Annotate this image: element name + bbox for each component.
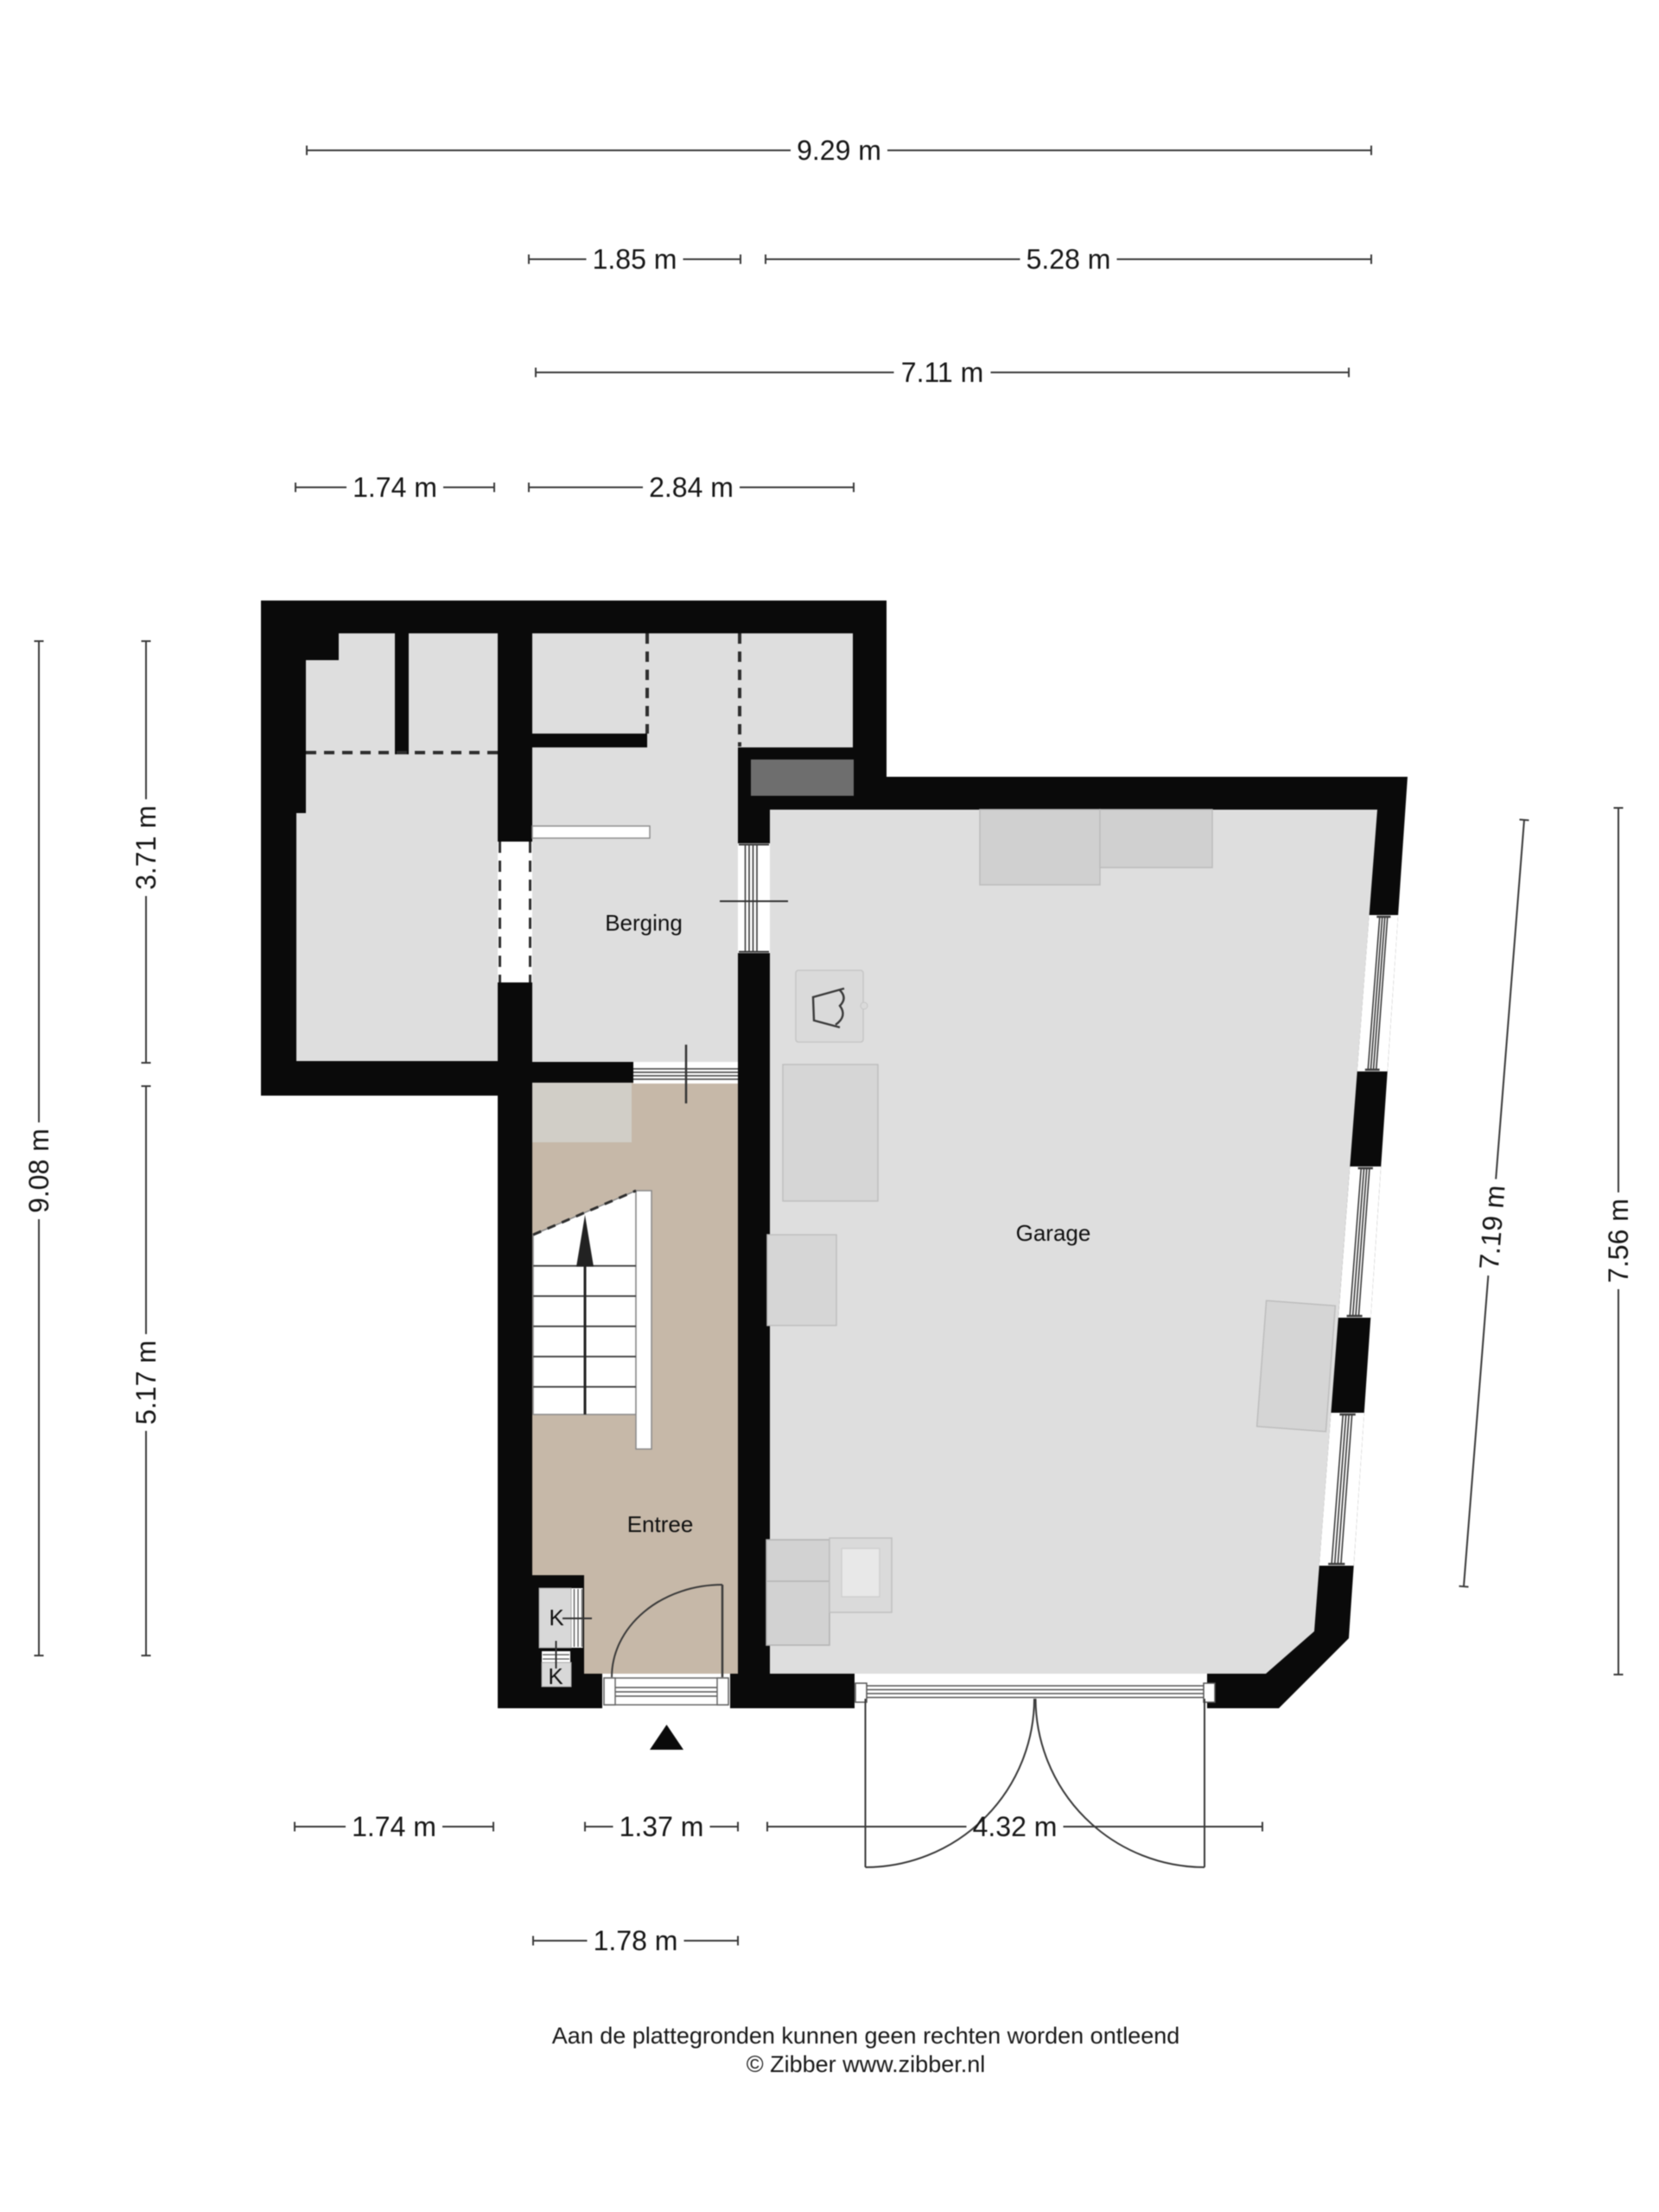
svg-text:9.29 m: 9.29 m bbox=[797, 135, 881, 166]
svg-text:1.78 m: 1.78 m bbox=[594, 1925, 678, 1956]
svg-text:1.74 m: 1.74 m bbox=[353, 472, 437, 503]
svg-text:7.56 m: 7.56 m bbox=[1603, 1198, 1634, 1283]
svg-text:2.84 m: 2.84 m bbox=[649, 472, 734, 503]
svg-text:1.74 m: 1.74 m bbox=[352, 1811, 436, 1842]
svg-text:1.85 m: 1.85 m bbox=[593, 244, 677, 275]
svg-text:1.37 m: 1.37 m bbox=[620, 1811, 704, 1842]
svg-text:3.71 m: 3.71 m bbox=[130, 805, 162, 890]
svg-text:K: K bbox=[548, 1663, 563, 1689]
svg-text:© Zibber www.zibber.nl: © Zibber www.zibber.nl bbox=[747, 2051, 986, 2077]
svg-text:Garage: Garage bbox=[1016, 1220, 1091, 1246]
svg-text:Berging: Berging bbox=[605, 910, 683, 936]
svg-text:4.32 m: 4.32 m bbox=[973, 1811, 1058, 1842]
svg-text:7.19 m: 7.19 m bbox=[1473, 1184, 1511, 1270]
svg-text:Aan de plattegronden kunnen ge: Aan de plattegronden kunnen geen rechten… bbox=[552, 2023, 1180, 2049]
svg-text:K: K bbox=[549, 1605, 564, 1630]
svg-text:5.28 m: 5.28 m bbox=[1027, 244, 1111, 275]
svg-text:5.17 m: 5.17 m bbox=[130, 1340, 162, 1425]
svg-text:9.08 m: 9.08 m bbox=[23, 1128, 54, 1213]
svg-text:7.11 m: 7.11 m bbox=[901, 357, 983, 388]
svg-text:Entree: Entree bbox=[627, 1511, 694, 1537]
